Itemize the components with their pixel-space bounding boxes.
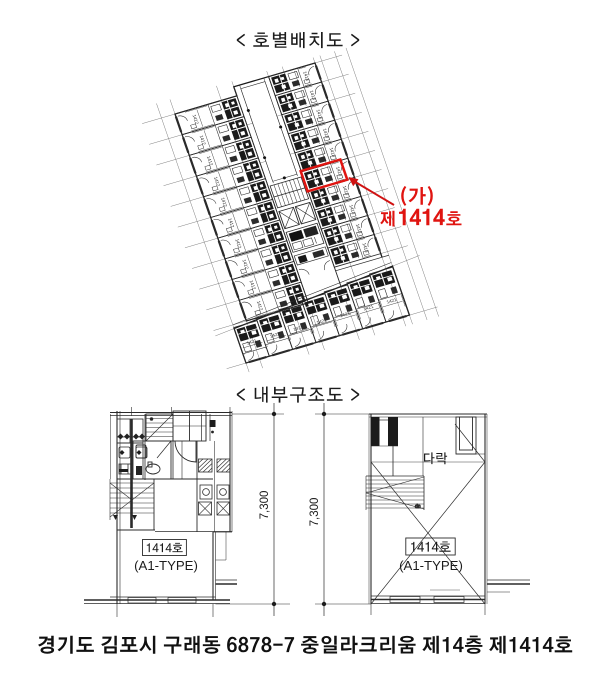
svg-text:7,300: 7,300 xyxy=(309,498,321,527)
svg-text:7,300: 7,300 xyxy=(259,491,271,520)
svg-text:dn: dn xyxy=(415,504,421,510)
svg-text:(A1-TYPE): (A1-TYPE) xyxy=(134,558,198,573)
svg-text:(A1-TYPE): (A1-TYPE) xyxy=(399,558,463,573)
